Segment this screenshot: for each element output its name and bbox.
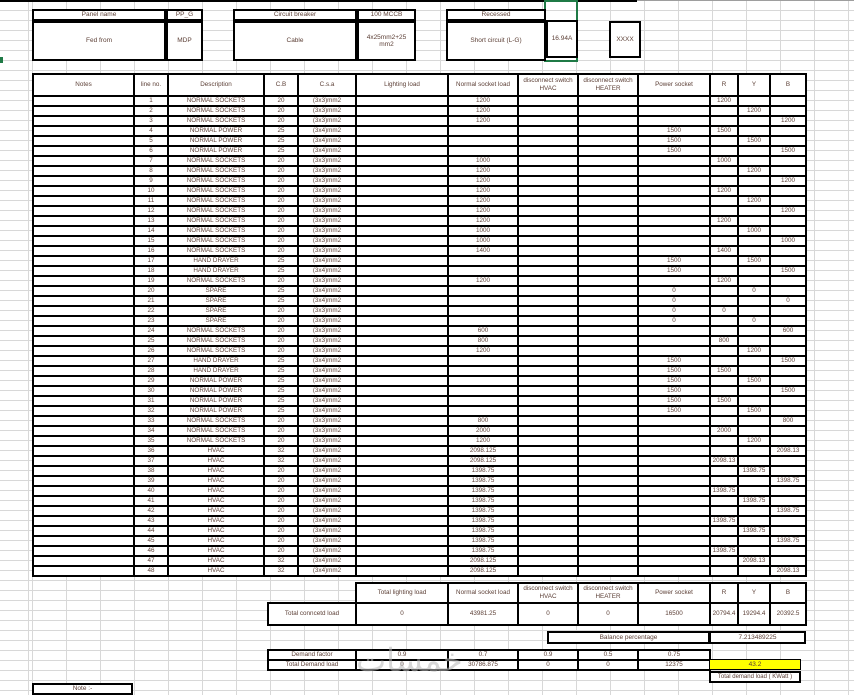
cell-phase-r[interactable]: 1200 — [710, 96, 738, 106]
cell-cb[interactable]: 20 — [264, 156, 298, 166]
cell-disconnect-hvac[interactable] — [518, 266, 578, 276]
cell-description[interactable]: HAND DRAYER — [168, 266, 264, 276]
cell-notes[interactable] — [33, 486, 134, 496]
cell-normal-socket-load[interactable] — [448, 406, 518, 416]
cell-phase-y[interactable]: 1200 — [738, 166, 770, 176]
cell-csa[interactable]: (3x3)mm2 — [298, 336, 356, 346]
demand-factor-value-1[interactable]: 0.7 — [448, 650, 518, 660]
cell-normal-socket-load[interactable]: 1398.75 — [448, 466, 518, 476]
cell-notes[interactable] — [33, 436, 134, 446]
cell-phase-y[interactable] — [738, 116, 770, 126]
cell-line-no[interactable]: 27 — [134, 356, 168, 366]
fed-from-value[interactable]: MDP — [166, 21, 203, 61]
cell-csa[interactable]: (3x3)mm2 — [298, 306, 356, 316]
cell-phase-b[interactable] — [770, 126, 806, 136]
cell-line-no[interactable]: 14 — [134, 226, 168, 236]
cell-csa[interactable]: (3x3)mm2 — [298, 106, 356, 116]
cell-phase-y[interactable] — [738, 506, 770, 516]
cell-lighting-load[interactable] — [356, 216, 448, 226]
cell-disconnect-heater[interactable] — [578, 546, 638, 556]
cell-lighting-load[interactable] — [356, 156, 448, 166]
cell-cb[interactable]: 25 — [264, 396, 298, 406]
cell-lighting-load[interactable] — [356, 106, 448, 116]
cell-power-socket[interactable] — [638, 526, 710, 536]
cell-normal-socket-load[interactable]: 1398.75 — [448, 476, 518, 486]
cell-description[interactable]: HVAC — [168, 476, 264, 486]
cell-cb[interactable]: 20 — [264, 506, 298, 516]
cell-notes[interactable] — [33, 216, 134, 226]
cell-normal-socket-load[interactable]: 1398.75 — [448, 516, 518, 526]
cell-cb[interactable]: 20 — [264, 526, 298, 536]
total-connected-normal-socket-load[interactable]: 43981.25 — [448, 603, 518, 625]
cell-description[interactable]: SPARE — [168, 306, 264, 316]
cell-lighting-load[interactable] — [356, 416, 448, 426]
cell-phase-y[interactable]: 1000 — [738, 226, 770, 236]
cell-phase-b[interactable] — [770, 256, 806, 266]
cell-normal-socket-load[interactable]: 1200 — [448, 206, 518, 216]
cell-csa[interactable]: (3x4)mm2 — [298, 136, 356, 146]
cell-cb[interactable]: 20 — [264, 106, 298, 116]
cell-disconnect-heater[interactable] — [578, 376, 638, 386]
cell-disconnect-heater[interactable] — [578, 526, 638, 536]
cell-normal-socket-load[interactable] — [448, 396, 518, 406]
cell-description[interactable]: NORMAL SOCKETS — [168, 186, 264, 196]
cell-phase-y[interactable]: 1500 — [738, 256, 770, 266]
cell-disconnect-heater[interactable] — [578, 536, 638, 546]
cell-cb[interactable]: 25 — [264, 296, 298, 306]
cell-power-socket[interactable] — [638, 436, 710, 446]
cell-lighting-load[interactable] — [356, 526, 448, 536]
cell-lighting-load[interactable] — [356, 306, 448, 316]
cell-phase-y[interactable] — [738, 336, 770, 346]
cell-disconnect-hvac[interactable] — [518, 366, 578, 376]
cell-normal-socket-load[interactable]: 2098.125 — [448, 556, 518, 566]
cell-normal-socket-load[interactable]: 2098.125 — [448, 566, 518, 576]
cell-line-no[interactable]: 26 — [134, 346, 168, 356]
cell-line-no[interactable]: 1 — [134, 96, 168, 106]
cell-phase-r[interactable]: 1400 — [710, 246, 738, 256]
cell-cb[interactable]: 20 — [264, 476, 298, 486]
cell-phase-y[interactable] — [738, 306, 770, 316]
cell-normal-socket-load[interactable]: 1398.75 — [448, 536, 518, 546]
cell-phase-b[interactable] — [770, 546, 806, 556]
cell-csa[interactable]: (3x4)mm2 — [298, 256, 356, 266]
cell-cb[interactable]: 20 — [264, 186, 298, 196]
cell-lighting-load[interactable] — [356, 256, 448, 266]
cell-disconnect-hvac[interactable] — [518, 486, 578, 496]
cell-disconnect-heater[interactable] — [578, 226, 638, 236]
cell-line-no[interactable]: 5 — [134, 136, 168, 146]
cell-phase-b[interactable] — [770, 316, 806, 326]
cell-phase-b[interactable]: 1200 — [770, 116, 806, 126]
cell-power-socket[interactable] — [638, 186, 710, 196]
cell-normal-socket-load[interactable] — [448, 296, 518, 306]
cell-cb[interactable]: 20 — [264, 276, 298, 286]
circuit-schedule-table[interactable]: Notesline no.DescriptionC.BC.s.aLighting… — [32, 73, 807, 577]
cell-cb[interactable]: 32 — [264, 446, 298, 456]
cell-phase-y[interactable]: 1398.75 — [738, 466, 770, 476]
cell-line-no[interactable]: 3 — [134, 116, 168, 126]
cell-disconnect-heater[interactable] — [578, 356, 638, 366]
total-demand-value-4[interactable]: 12375 — [638, 660, 710, 670]
cell-normal-socket-load[interactable]: 1200 — [448, 436, 518, 446]
cell-disconnect-hvac[interactable] — [518, 536, 578, 546]
cell-lighting-load[interactable] — [356, 286, 448, 296]
cell-lighting-load[interactable] — [356, 226, 448, 236]
cell-phase-y[interactable] — [738, 456, 770, 466]
cell-description[interactable]: NORMAL SOCKETS — [168, 96, 264, 106]
cell-lighting-load[interactable] — [356, 146, 448, 156]
summary-header-normal-socket-load[interactable]: Normal socket load — [448, 583, 518, 603]
cell-phase-y[interactable] — [738, 366, 770, 376]
cell-description[interactable]: HVAC — [168, 566, 264, 576]
cell-notes[interactable] — [33, 456, 134, 466]
total-connected-b[interactable]: 20392.5 — [770, 603, 806, 625]
cell-disconnect-hvac[interactable] — [518, 236, 578, 246]
cell-phase-r[interactable] — [710, 226, 738, 236]
cell-cb[interactable]: 20 — [264, 196, 298, 206]
cell-phase-b[interactable]: 1500 — [770, 386, 806, 396]
cell-phase-y[interactable] — [738, 446, 770, 456]
cell-line-no[interactable]: 41 — [134, 496, 168, 506]
cell-phase-y[interactable] — [738, 476, 770, 486]
cell-csa[interactable]: (3x3)mm2 — [298, 156, 356, 166]
cell-line-no[interactable]: 21 — [134, 296, 168, 306]
cell-lighting-load[interactable] — [356, 206, 448, 216]
demand-factor-value-3[interactable]: 0.5 — [578, 650, 638, 660]
cell-normal-socket-load[interactable]: 1200 — [448, 106, 518, 116]
cell-disconnect-hvac[interactable] — [518, 196, 578, 206]
cell-power-socket[interactable]: 1500 — [638, 136, 710, 146]
cell-description[interactable]: SPARE — [168, 296, 264, 306]
cell-phase-b[interactable] — [770, 286, 806, 296]
cell-phase-b[interactable]: 1398.75 — [770, 476, 806, 486]
cell-lighting-load[interactable] — [356, 296, 448, 306]
cell-lighting-load[interactable] — [356, 96, 448, 106]
cell-description[interactable]: HVAC — [168, 466, 264, 476]
cell-lighting-load[interactable] — [356, 566, 448, 576]
cell-description[interactable]: SPARE — [168, 286, 264, 296]
cell-phase-y[interactable] — [738, 416, 770, 426]
cell-phase-b[interactable] — [770, 186, 806, 196]
cell-disconnect-hvac[interactable] — [518, 496, 578, 506]
cell-lighting-load[interactable] — [356, 316, 448, 326]
cell-description[interactable]: HVAC — [168, 536, 264, 546]
cell-disconnect-heater[interactable] — [578, 126, 638, 136]
cell-phase-b[interactable] — [770, 486, 806, 496]
cell-power-socket[interactable] — [638, 536, 710, 546]
cell-disconnect-hvac[interactable] — [518, 416, 578, 426]
cell-normal-socket-load[interactable]: 1200 — [448, 96, 518, 106]
cell-cb[interactable]: 25 — [264, 376, 298, 386]
cell-csa[interactable]: (3x4)mm2 — [298, 146, 356, 156]
cell-cb[interactable]: 25 — [264, 146, 298, 156]
cell-phase-y[interactable] — [738, 236, 770, 246]
cell-phase-b[interactable]: 1500 — [770, 146, 806, 156]
cell-phase-y[interactable]: 1200 — [738, 436, 770, 446]
cell-phase-y[interactable] — [738, 546, 770, 556]
cell-phase-y[interactable]: 1200 — [738, 196, 770, 206]
cell-lighting-load[interactable] — [356, 126, 448, 136]
cell-disconnect-hvac[interactable] — [518, 466, 578, 476]
cell-power-socket[interactable]: 1500 — [638, 256, 710, 266]
cell-power-socket[interactable] — [638, 116, 710, 126]
cell-phase-y[interactable]: 1200 — [738, 106, 770, 116]
cell-line-no[interactable]: 19 — [134, 276, 168, 286]
column-header-r[interactable]: R — [710, 74, 738, 96]
cell-power-socket[interactable] — [638, 276, 710, 286]
cell-lighting-load[interactable] — [356, 446, 448, 456]
cell-disconnect-heater[interactable] — [578, 136, 638, 146]
cell-phase-y[interactable] — [738, 276, 770, 286]
cell-phase-y[interactable] — [738, 156, 770, 166]
cell-phase-b[interactable] — [770, 366, 806, 376]
cell-lighting-load[interactable] — [356, 436, 448, 446]
cell-normal-socket-load[interactable] — [448, 386, 518, 396]
cell-disconnect-hvac[interactable] — [518, 426, 578, 436]
cell-lighting-load[interactable] — [356, 546, 448, 556]
cell-lighting-load[interactable] — [356, 116, 448, 126]
cell-cb[interactable]: 20 — [264, 466, 298, 476]
short-circuit-value[interactable]: 16.94A — [546, 20, 578, 58]
cell-power-socket[interactable]: 1500 — [638, 396, 710, 406]
cell-power-socket[interactable] — [638, 176, 710, 186]
cell-notes[interactable] — [33, 556, 134, 566]
cell-line-no[interactable]: 47 — [134, 556, 168, 566]
cell-disconnect-heater[interactable] — [578, 506, 638, 516]
cell-description[interactable]: NORMAL SOCKETS — [168, 236, 264, 246]
cell-notes[interactable] — [33, 476, 134, 486]
cell-power-socket[interactable] — [638, 416, 710, 426]
cell-csa[interactable]: (3x4)mm2 — [298, 126, 356, 136]
cell-cb[interactable]: 20 — [264, 546, 298, 556]
cell-normal-socket-load[interactable]: 1200 — [448, 116, 518, 126]
cell-normal-socket-load[interactable] — [448, 286, 518, 296]
cell-notes[interactable] — [33, 166, 134, 176]
column-header-disconnect-switch-heater[interactable]: disconnect switch HEATER — [578, 74, 638, 96]
cell-disconnect-heater[interactable] — [578, 166, 638, 176]
cell-disconnect-hvac[interactable] — [518, 376, 578, 386]
summary-header-disconnect-switch-heater[interactable]: disconnect switch HEATER — [578, 583, 638, 603]
cell-description[interactable]: NORMAL POWER — [168, 376, 264, 386]
cell-phase-b[interactable] — [770, 426, 806, 436]
cell-normal-socket-load[interactable] — [448, 376, 518, 386]
cell-disconnect-hvac[interactable] — [518, 226, 578, 236]
cell-notes[interactable] — [33, 96, 134, 106]
cell-phase-y[interactable] — [738, 396, 770, 406]
cell-power-socket[interactable]: 1500 — [638, 406, 710, 416]
total-demand-kw-value[interactable]: 43.2 — [709, 659, 801, 670]
cell-disconnect-heater[interactable] — [578, 286, 638, 296]
cell-line-no[interactable]: 43 — [134, 516, 168, 526]
cell-description[interactable]: HVAC — [168, 546, 264, 556]
cell-disconnect-hvac[interactable] — [518, 386, 578, 396]
cell-cb[interactable]: 20 — [264, 416, 298, 426]
cell-disconnect-heater[interactable] — [578, 336, 638, 346]
cell-disconnect-hvac[interactable] — [518, 116, 578, 126]
cell-phase-b[interactable] — [770, 246, 806, 256]
cell-description[interactable]: NORMAL SOCKETS — [168, 426, 264, 436]
cell-description[interactable]: NORMAL SOCKETS — [168, 106, 264, 116]
cell-disconnect-heater[interactable] — [578, 96, 638, 106]
cell-cb[interactable]: 20 — [264, 496, 298, 506]
cell-disconnect-heater[interactable] — [578, 396, 638, 406]
cell-phase-r[interactable] — [710, 356, 738, 366]
cell-phase-r[interactable] — [710, 136, 738, 146]
cell-phase-r[interactable] — [710, 286, 738, 296]
cell-description[interactable]: NORMAL SOCKETS — [168, 336, 264, 346]
cell-cb[interactable]: 20 — [264, 96, 298, 106]
cell-description[interactable]: NORMAL SOCKETS — [168, 346, 264, 356]
cell-phase-y[interactable] — [738, 386, 770, 396]
cell-cb[interactable]: 32 — [264, 556, 298, 566]
cell-phase-r[interactable] — [710, 256, 738, 266]
cell-disconnect-hvac[interactable] — [518, 176, 578, 186]
cell-disconnect-heater[interactable] — [578, 256, 638, 266]
total-demand-value-1[interactable]: 30786.875 — [448, 660, 518, 670]
cell-normal-socket-load[interactable]: 1200 — [448, 346, 518, 356]
cell-disconnect-heater[interactable] — [578, 206, 638, 216]
cell-lighting-load[interactable] — [356, 176, 448, 186]
cell-normal-socket-load[interactable]: 1398.75 — [448, 496, 518, 506]
cell-phase-b[interactable]: 1200 — [770, 176, 806, 186]
cell-cb[interactable]: 25 — [264, 356, 298, 366]
cell-notes[interactable] — [33, 306, 134, 316]
cell-disconnect-hvac[interactable] — [518, 436, 578, 446]
cell-notes[interactable] — [33, 406, 134, 416]
cell-phase-b[interactable]: 1398.75 — [770, 536, 806, 546]
cell-power-socket[interactable]: 0 — [638, 306, 710, 316]
cell-description[interactable]: NORMAL POWER — [168, 146, 264, 156]
cell-line-no[interactable]: 38 — [134, 466, 168, 476]
cell-cb[interactable]: 20 — [264, 206, 298, 216]
cell-notes[interactable] — [33, 446, 134, 456]
cell-line-no[interactable]: 23 — [134, 316, 168, 326]
column-header-power-socket[interactable]: Power socket — [638, 74, 710, 96]
cell-normal-socket-load[interactable] — [448, 366, 518, 376]
demand-factor-value-2[interactable]: 0.9 — [518, 650, 578, 660]
cell-phase-r[interactable]: 2098.13 — [710, 456, 738, 466]
cell-disconnect-hvac[interactable] — [518, 316, 578, 326]
summary-header-y[interactable]: Y — [738, 583, 770, 603]
cell-line-no[interactable]: 4 — [134, 126, 168, 136]
cable-value[interactable]: 4x25mm2+25mm2 — [357, 21, 416, 61]
cell-disconnect-heater[interactable] — [578, 156, 638, 166]
cell-notes[interactable] — [33, 276, 134, 286]
cell-phase-r[interactable] — [710, 386, 738, 396]
cell-csa[interactable]: (3x4)mm2 — [298, 506, 356, 516]
cell-csa[interactable]: (3x3)mm2 — [298, 226, 356, 236]
cell-csa[interactable]: (3x3)mm2 — [298, 196, 356, 206]
cell-notes[interactable] — [33, 116, 134, 126]
cell-disconnect-hvac[interactable] — [518, 516, 578, 526]
cell-csa[interactable]: (3x4)mm2 — [298, 466, 356, 476]
cell-phase-r[interactable]: 1500 — [710, 366, 738, 376]
cell-csa[interactable]: (3x4)mm2 — [298, 556, 356, 566]
cell-csa[interactable]: (3x3)mm2 — [298, 236, 356, 246]
cell-normal-socket-load[interactable]: 800 — [448, 416, 518, 426]
cell-description[interactable]: NORMAL SOCKETS — [168, 246, 264, 256]
cell-phase-y[interactable] — [738, 516, 770, 526]
cell-phase-b[interactable] — [770, 196, 806, 206]
cell-csa[interactable]: (3x3)mm2 — [298, 346, 356, 356]
cell-phase-r[interactable] — [710, 196, 738, 206]
cell-normal-socket-load[interactable]: 1400 — [448, 246, 518, 256]
cell-description[interactable]: NORMAL SOCKETS — [168, 416, 264, 426]
cell-lighting-load[interactable] — [356, 376, 448, 386]
cell-description[interactable]: NORMAL SOCKETS — [168, 436, 264, 446]
cell-line-no[interactable]: 13 — [134, 216, 168, 226]
balance-percentage-value[interactable]: 7.213489225 — [709, 631, 806, 644]
cell-phase-r[interactable] — [710, 466, 738, 476]
cell-normal-socket-load[interactable]: 2098.125 — [448, 446, 518, 456]
cell-phase-b[interactable] — [770, 226, 806, 236]
cell-description[interactable]: HAND DRAYER — [168, 356, 264, 366]
cell-power-socket[interactable] — [638, 326, 710, 336]
cell-cb[interactable]: 20 — [264, 336, 298, 346]
cell-power-socket[interactable] — [638, 246, 710, 256]
cell-notes[interactable] — [33, 376, 134, 386]
cell-description[interactable]: HVAC — [168, 456, 264, 466]
cell-phase-r[interactable]: 1500 — [710, 126, 738, 136]
cell-disconnect-heater[interactable] — [578, 296, 638, 306]
cell-disconnect-hvac[interactable] — [518, 556, 578, 566]
cell-disconnect-heater[interactable] — [578, 366, 638, 376]
cell-disconnect-heater[interactable] — [578, 476, 638, 486]
cell-disconnect-hvac[interactable] — [518, 296, 578, 306]
cell-phase-y[interactable] — [738, 176, 770, 186]
cell-phase-r[interactable] — [710, 506, 738, 516]
cell-description[interactable]: NORMAL POWER — [168, 126, 264, 136]
cell-csa[interactable]: (3x3)mm2 — [298, 426, 356, 436]
cell-notes[interactable] — [33, 316, 134, 326]
cell-phase-r[interactable]: 0 — [710, 306, 738, 316]
cell-phase-b[interactable] — [770, 106, 806, 116]
cell-disconnect-hvac[interactable] — [518, 566, 578, 576]
cell-phase-y[interactable] — [738, 266, 770, 276]
cell-disconnect-hvac[interactable] — [518, 476, 578, 486]
cell-disconnect-heater[interactable] — [578, 556, 638, 566]
cell-disconnect-heater[interactable] — [578, 106, 638, 116]
cell-normal-socket-load[interactable]: 1398.75 — [448, 506, 518, 516]
cell-description[interactable]: HAND DRAYER — [168, 366, 264, 376]
cell-disconnect-hvac[interactable] — [518, 146, 578, 156]
cell-disconnect-heater[interactable] — [578, 386, 638, 396]
cell-description[interactable]: NORMAL POWER — [168, 396, 264, 406]
cell-disconnect-hvac[interactable] — [518, 206, 578, 216]
cell-power-socket[interactable] — [638, 476, 710, 486]
column-header-description[interactable]: Description — [168, 74, 264, 96]
cell-notes[interactable] — [33, 156, 134, 166]
cell-notes[interactable] — [33, 236, 134, 246]
cell-line-no[interactable]: 12 — [134, 206, 168, 216]
cell-lighting-load[interactable] — [356, 536, 448, 546]
cell-disconnect-hvac[interactable] — [518, 396, 578, 406]
cell-cb[interactable]: 32 — [264, 456, 298, 466]
cell-phase-r[interactable] — [710, 416, 738, 426]
cell-disconnect-hvac[interactable] — [518, 96, 578, 106]
cell-power-socket[interactable] — [638, 236, 710, 246]
cell-line-no[interactable]: 11 — [134, 196, 168, 206]
cell-phase-y[interactable]: 1500 — [738, 406, 770, 416]
cell-notes[interactable] — [33, 346, 134, 356]
cell-normal-socket-load[interactable]: 800 — [448, 336, 518, 346]
cell-line-no[interactable]: 28 — [134, 366, 168, 376]
cell-disconnect-heater[interactable] — [578, 116, 638, 126]
cell-cb[interactable]: 20 — [264, 516, 298, 526]
cell-phase-r[interactable]: 1200 — [710, 216, 738, 226]
cell-disconnect-hvac[interactable] — [518, 446, 578, 456]
